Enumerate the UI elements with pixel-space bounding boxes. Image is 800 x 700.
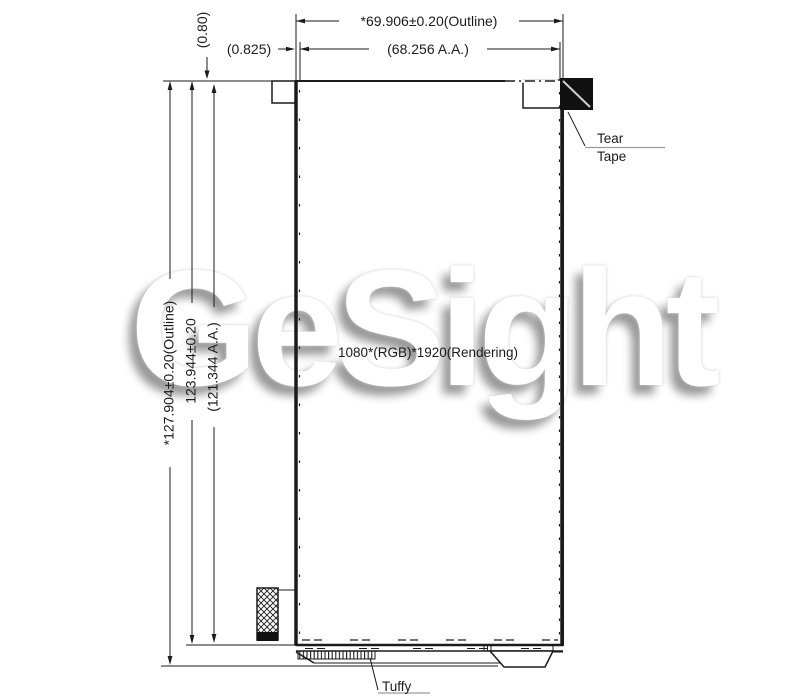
tear-tape-leader-line — [568, 112, 585, 146]
panel-outline-drawing: Tear Tape Tuffy — [0, 0, 800, 700]
dim-top-gap: (0.80) — [194, 12, 210, 49]
technical-drawing-page: GeSight — [0, 0, 800, 700]
bottom-connector-assembly — [296, 645, 563, 667]
serrated-strip — [298, 651, 375, 659]
side-hatched-block — [257, 588, 296, 641]
active-area-chain-lines — [300, 81, 560, 640]
resolution-label: 1080*(RGB)*1920(Rendering) — [338, 345, 518, 360]
connector-trapezoid — [490, 651, 553, 667]
tear-tape-label-line1: Tear — [597, 131, 624, 146]
top-left-notch — [272, 81, 296, 103]
dim-outline-height: *127.904±0.20(Outline) — [161, 301, 177, 446]
tear-tape: Tear Tape — [560, 78, 665, 164]
panel-outline — [272, 80, 563, 645]
dim-aa-width: (68.256 A.A.) — [387, 41, 469, 57]
dim-aa-height: (121.344 A.A.) — [205, 322, 221, 412]
tear-tape-label-line2: Tape — [597, 149, 626, 164]
dim-outline-width: *69.906±0.20(Outline) — [361, 13, 498, 29]
tuffy-label: Tuffy — [382, 679, 412, 694]
dim-left-gap: (0.825) — [227, 41, 271, 57]
dim-panel-height: 123.944±0.20 — [183, 318, 199, 404]
top-right-tab — [523, 80, 562, 108]
